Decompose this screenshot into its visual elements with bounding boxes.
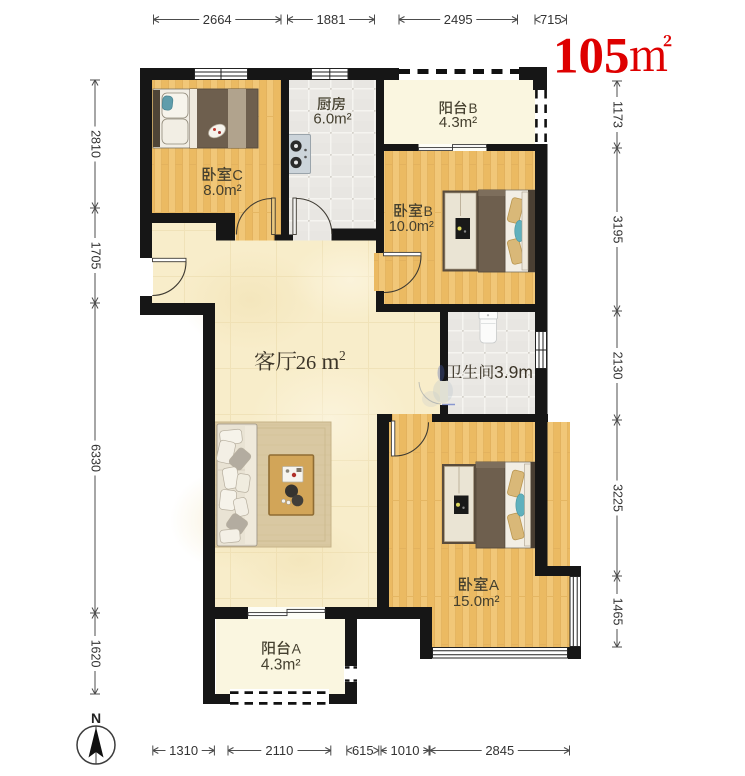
- svg-text:715: 715: [540, 12, 562, 27]
- svg-text:3.9m: 3.9m: [494, 362, 533, 382]
- svg-text:2495: 2495: [444, 12, 473, 27]
- svg-text:15.0m²: 15.0m²: [453, 593, 500, 610]
- svg-text:3225: 3225: [610, 484, 624, 512]
- svg-text:1881: 1881: [317, 12, 346, 27]
- svg-text:1010: 1010: [391, 743, 420, 758]
- svg-text:1705: 1705: [88, 242, 102, 270]
- svg-text:105: 105: [553, 29, 630, 85]
- svg-text:2810: 2810: [88, 130, 102, 158]
- svg-text:10.0m²: 10.0m²: [389, 219, 434, 235]
- svg-text:615: 615: [352, 743, 374, 758]
- svg-text:1173: 1173: [610, 101, 624, 128]
- svg-text:4.3m²: 4.3m²: [261, 657, 301, 674]
- svg-text:1620: 1620: [88, 640, 102, 668]
- svg-text:A: A: [489, 577, 499, 594]
- svg-text:26: 26: [296, 352, 317, 374]
- svg-text:4.3m²: 4.3m²: [439, 114, 477, 131]
- svg-text:1310: 1310: [169, 743, 198, 758]
- svg-text:2: 2: [339, 348, 346, 363]
- svg-text:2130: 2130: [610, 352, 624, 380]
- svg-text:8.0m²: 8.0m²: [203, 182, 241, 199]
- svg-text:N: N: [91, 710, 101, 726]
- svg-text:A: A: [292, 641, 302, 657]
- svg-text:2664: 2664: [203, 12, 232, 27]
- svg-text:B: B: [424, 203, 433, 219]
- svg-text:2110: 2110: [265, 743, 293, 758]
- svg-text:m: m: [322, 349, 340, 374]
- svg-text:6330: 6330: [88, 444, 102, 472]
- svg-text:3195: 3195: [610, 216, 624, 244]
- svg-text:2845: 2845: [485, 743, 514, 758]
- svg-text:1465: 1465: [610, 598, 624, 626]
- svg-text:6.0m²: 6.0m²: [313, 111, 351, 128]
